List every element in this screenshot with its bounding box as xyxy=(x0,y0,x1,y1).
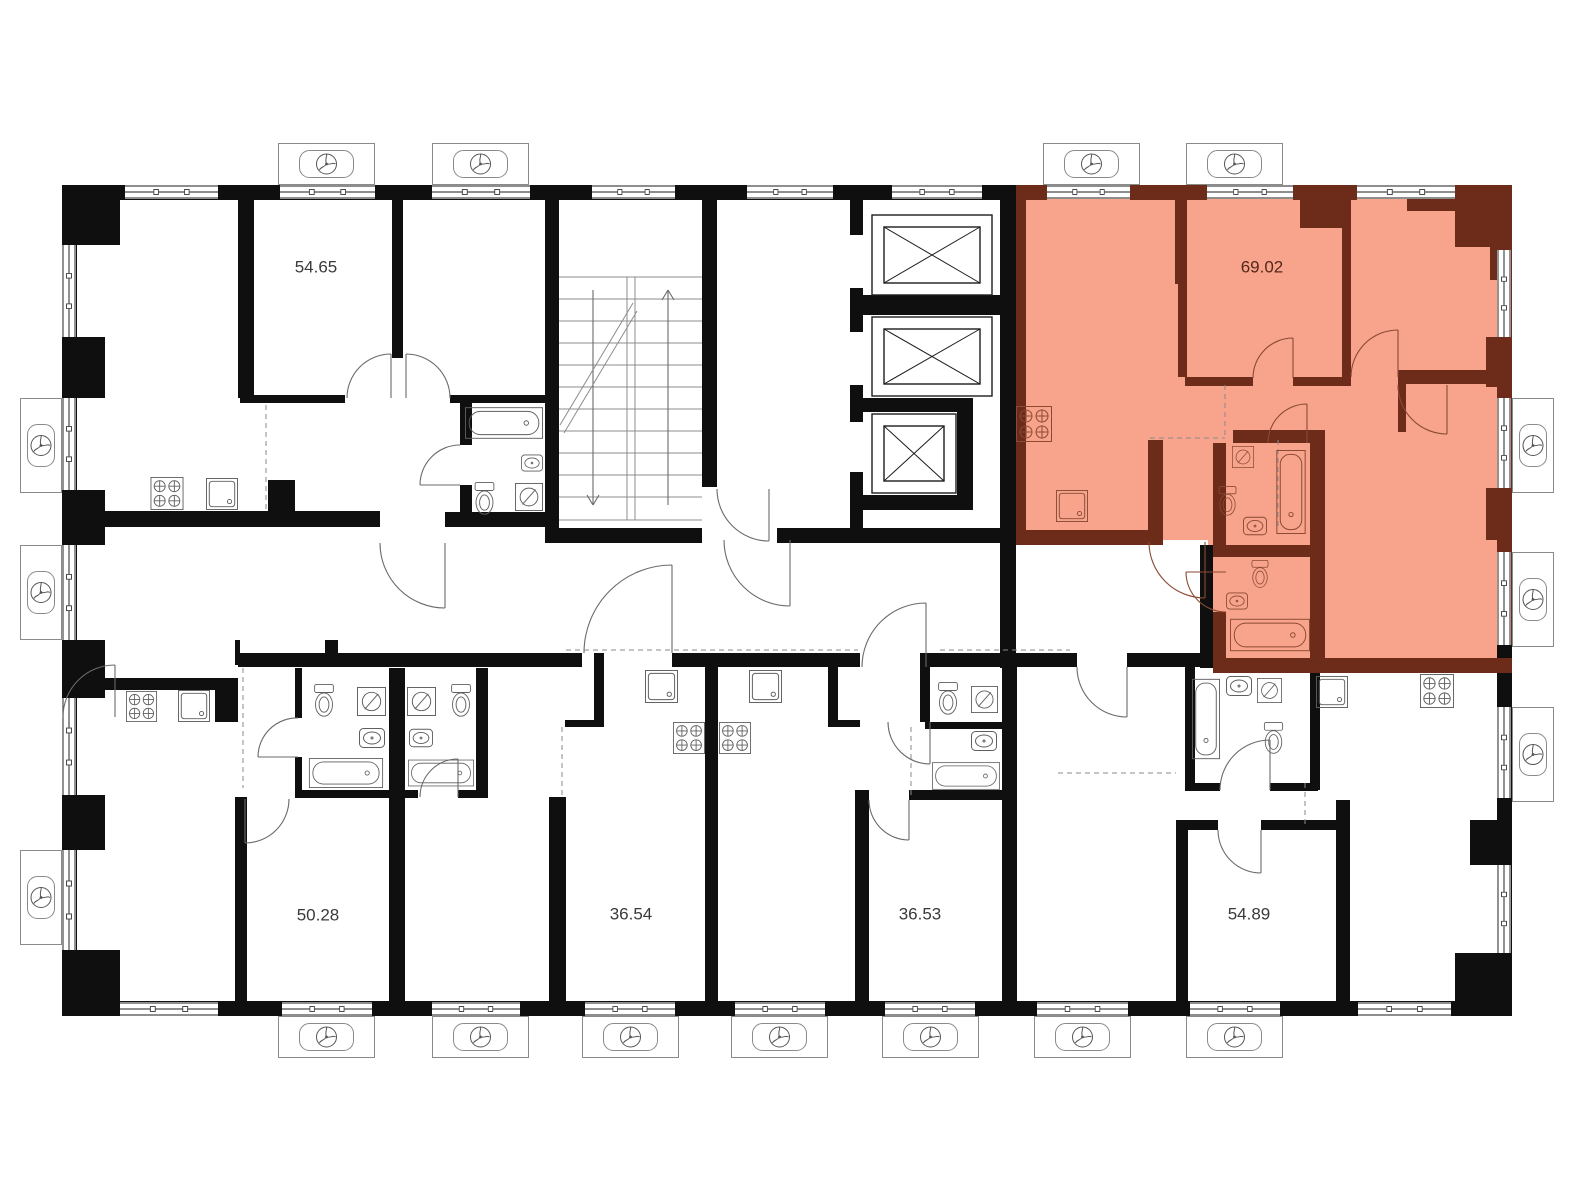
window-icon xyxy=(1190,1002,1280,1016)
door-swing-icon xyxy=(380,543,445,608)
fan-icon xyxy=(433,144,529,185)
door-swing-icon xyxy=(406,354,450,398)
door-swing-icon xyxy=(869,800,909,840)
door-swing-icon xyxy=(347,354,391,398)
door-swing-icon xyxy=(724,540,790,606)
window-icon xyxy=(592,185,675,199)
door-swing-icon xyxy=(888,722,930,764)
apartment-area-label[interactable]: 50.28 xyxy=(297,906,340,925)
fan-icon xyxy=(1187,1017,1283,1058)
window-icon xyxy=(62,850,76,950)
bathtub-icon xyxy=(408,760,473,786)
door-swing-icon xyxy=(258,718,298,757)
window-icon xyxy=(62,698,76,795)
window-icon xyxy=(62,398,76,490)
apartment-area-label[interactable]: 36.54 xyxy=(610,905,653,924)
window-icon xyxy=(1358,1002,1451,1016)
fan-icon xyxy=(1513,553,1554,647)
elevator-shaft-icon xyxy=(872,215,992,295)
fan-icon xyxy=(21,399,62,493)
window-icon xyxy=(280,185,375,199)
fan-icon xyxy=(1513,399,1554,493)
door-swing-icon xyxy=(1149,542,1205,598)
bathtub-icon xyxy=(1192,679,1219,758)
kitchen-sink-icon xyxy=(178,690,209,721)
window-icon xyxy=(1497,707,1511,798)
window-icon xyxy=(1497,250,1511,337)
stove-burners-icon xyxy=(1420,674,1453,707)
window-icon xyxy=(432,185,530,199)
kitchen-sink-icon xyxy=(1316,676,1347,707)
washbasin-icon xyxy=(409,729,432,747)
fan-icon xyxy=(883,1017,979,1058)
washing-machine-icon xyxy=(1257,678,1281,702)
washbasin-icon xyxy=(972,732,997,751)
staircase-icon xyxy=(559,277,702,520)
floor-plan-drawing: 54.65 69.02 50.28 36.54 36.53 54.89 xyxy=(0,0,1587,1200)
fan-icon xyxy=(279,144,375,185)
fan-icon xyxy=(433,1017,529,1058)
apartment-area-label[interactable]: 54.65 xyxy=(295,258,338,277)
window-icon xyxy=(1047,185,1130,199)
washbasin-icon xyxy=(360,729,385,748)
fan-icon xyxy=(1044,144,1140,185)
door-swing-icon xyxy=(862,603,926,667)
window-icon xyxy=(125,185,218,199)
fan-icon xyxy=(1035,1017,1131,1058)
elevator-shaft-icon xyxy=(872,317,992,396)
apartment-area-label[interactable]: 69.02 xyxy=(1241,258,1284,277)
kitchen-sink-icon xyxy=(206,478,237,509)
window-icon xyxy=(1207,185,1293,199)
window-icon xyxy=(1497,865,1511,953)
kitchen-sink-icon xyxy=(749,670,781,702)
elevators xyxy=(872,215,992,493)
door-swing-icon xyxy=(1218,830,1261,873)
window-icon xyxy=(885,1002,975,1016)
door-swing-icon xyxy=(1220,740,1270,790)
washing-machine-icon xyxy=(407,687,435,715)
fan-icon xyxy=(1187,144,1283,185)
fan-icon xyxy=(1513,708,1554,802)
window-icon xyxy=(1357,185,1455,199)
window-icon xyxy=(1497,552,1511,645)
stove-burners-icon xyxy=(126,691,156,721)
window-icon xyxy=(282,1002,372,1016)
window-icon xyxy=(892,185,982,199)
door-swing-icon xyxy=(420,759,458,797)
window-icon xyxy=(120,1002,218,1016)
door-swing-icon xyxy=(245,799,289,843)
washing-machine-icon xyxy=(971,686,997,712)
bathtub-icon xyxy=(932,763,999,790)
fan-icon xyxy=(21,851,62,945)
toilet-icon xyxy=(452,684,471,716)
apartment-area-label[interactable]: 54.89 xyxy=(1228,905,1271,924)
fan-icon xyxy=(583,1017,679,1058)
washbasin-icon xyxy=(521,455,542,471)
window-icon xyxy=(1037,1002,1128,1016)
toilet-icon xyxy=(1264,722,1282,753)
stove-burners-icon xyxy=(673,722,704,753)
washing-machine-icon xyxy=(515,483,542,510)
stove-burners-icon xyxy=(151,477,183,509)
door-swing-icon xyxy=(717,489,769,541)
apartment-area-label[interactable]: 36.53 xyxy=(899,905,942,924)
window-icon xyxy=(735,1002,825,1016)
window-icon xyxy=(585,1002,675,1016)
window-icon xyxy=(62,245,76,337)
toilet-icon xyxy=(939,682,958,714)
door-swing-icon xyxy=(1077,667,1127,717)
bathtub-icon xyxy=(465,408,542,439)
fan-icon xyxy=(279,1017,375,1058)
window-icon xyxy=(62,545,76,640)
floor-plan: 54.65 69.02 50.28 36.54 36.53 54.89 xyxy=(0,0,1587,1200)
door-swing-icon xyxy=(584,565,672,653)
bathtub-icon xyxy=(309,758,382,787)
fan-icon xyxy=(21,546,62,640)
fan-icon xyxy=(732,1017,828,1058)
washbasin-icon xyxy=(1227,677,1252,696)
toilet-icon xyxy=(315,684,334,716)
window-icon xyxy=(747,185,833,199)
toilet-icon xyxy=(475,482,494,514)
door-swing-icon xyxy=(420,445,460,485)
stove-burners-icon xyxy=(719,722,750,753)
washing-machine-icon xyxy=(357,687,385,715)
elevator-shaft-icon xyxy=(872,414,956,493)
window-icon xyxy=(432,1002,520,1016)
window-icon xyxy=(1497,398,1511,488)
kitchen-sink-icon xyxy=(645,670,677,702)
